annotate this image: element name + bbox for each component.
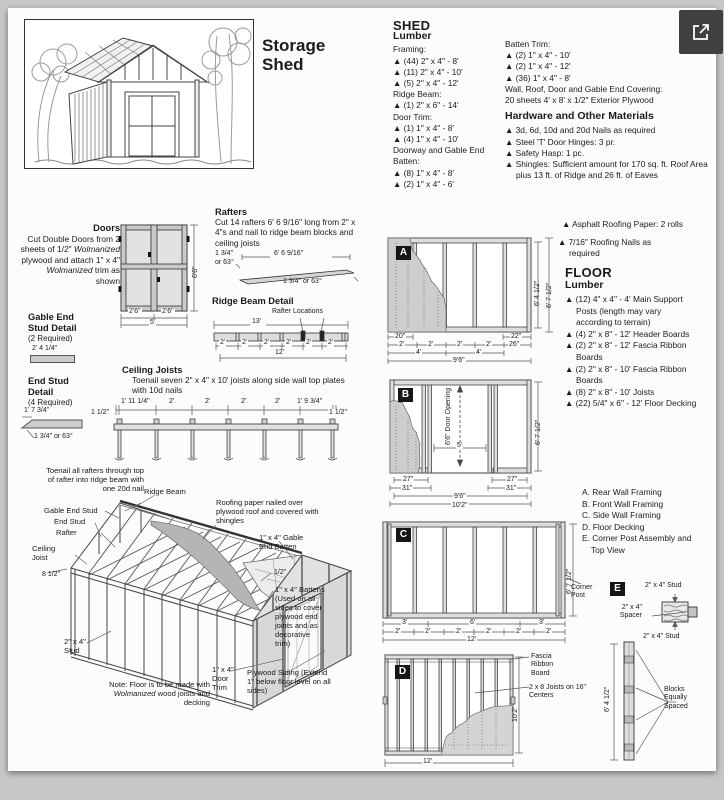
panel-a-dim: 2' (456, 341, 463, 349)
panel-b-dim: 31" (505, 485, 517, 493)
floor-note-text: wood joists and decking (156, 689, 210, 707)
list-item: ▲ Asphalt Roofing Paper: 2 rolls (562, 219, 714, 230)
spacer-label: 2" x 4" Spacer (606, 604, 642, 621)
batten-offset-dim: 1/2" (274, 569, 286, 577)
panel-a-dim: 4' (475, 349, 482, 357)
joist-seg-dim: 2' (240, 398, 247, 406)
joist-end-dim: 1 1/2" (90, 409, 110, 417)
side-wall-framing-diagram (381, 520, 586, 646)
panel-a-dim: 20" (394, 333, 406, 341)
floor-note-text: Note: Floor is to be made with (109, 680, 210, 689)
list-item: ▲ Safety Hasp: 1 pc. (505, 148, 721, 159)
ridge-beam-label: Ridge Beam (144, 488, 186, 497)
ridge-beam-detail-heading: Ridge Beam Detail (212, 296, 294, 307)
ridge-total-dim: 12' (274, 349, 285, 357)
joist-end-dim: 1 1/2" (328, 409, 348, 417)
doors-text-italic: Wolmanized (74, 244, 120, 254)
panel-c-dim: 2' (424, 628, 431, 636)
rear-wall-framing-diagram (386, 236, 556, 366)
list-item: ▲ (36) 1" x 4" - 8' (505, 73, 721, 84)
corner-post-top-view (656, 594, 706, 636)
end-stud-length-dim: 1' 7 3/4" (24, 407, 49, 415)
list-item: ▲ (4) 1" x 4" - 10' (393, 134, 501, 145)
panel-a-dim: 2' (398, 341, 405, 349)
joist-seg-dim: 2' (204, 398, 211, 406)
gable-batten-label: 1" x 4" Gable End Batten (259, 534, 305, 552)
gable-end-stud-dim: 2' 4 1/4" (32, 345, 57, 353)
panel-c-dim: 2' (485, 628, 492, 636)
panel-a-dim: 22" (510, 333, 522, 341)
doors-text-italic: Wolmanized (46, 265, 92, 275)
shed-subheading: Lumber (393, 31, 501, 42)
panel-c-dim: 2' (515, 628, 522, 636)
gable-end-stud-heading: Gable End Stud Detail (28, 312, 90, 334)
panel-c-badge: C (396, 528, 411, 542)
joist-seg-dim: 1' 9 3/4" (296, 398, 323, 406)
end-stud-label: End Stud (54, 518, 85, 527)
ridge-top-dim: 13' (251, 318, 262, 326)
legend-item: A. Rear Wall Framing (582, 487, 696, 499)
list-item: ▲ (2) 2" x 8" - 10' Fascia Ribbon Boards (565, 364, 697, 387)
list-item: ▲ (2) 1" x 4" - 12' (505, 61, 721, 72)
end-stud-heading: End Stud Detail (28, 376, 80, 398)
door-height-dim: 6'6" (192, 266, 200, 278)
list-item: ▲ (5) 2" x 4" - 12' (393, 78, 501, 89)
door-trim-label: 1" x 4" Door Trim (212, 666, 238, 693)
legend-item: D. Floor Decking (582, 522, 696, 534)
panel-b-dim: 10'2" (451, 502, 469, 510)
doors-heading: Doors (20, 223, 120, 234)
panel-a-dim: 9'6" (452, 357, 466, 365)
list-item: ▲ (2) 2" x 8" - 12' Fascia Ribbon Boards (565, 340, 697, 363)
list-item: ▲ Steel 'T' Door Hinges: 3 pr. (505, 137, 721, 148)
ridge-seg-dim: 2' (241, 339, 248, 347)
panel-b-badge: B (398, 388, 413, 402)
page-title-line1: Storage (262, 36, 325, 55)
framing-label: Framing: (393, 44, 501, 55)
panel-c-dim: 3' (538, 619, 545, 627)
doors-text: plywood and attach 1" x 4" (21, 255, 120, 265)
doors-text: trim as shown (93, 265, 120, 286)
panel-c-dim: 6' (469, 619, 476, 627)
hardware-heading: Hardware and Other Materials (505, 111, 721, 122)
ridge-seg-dim: 2' (263, 339, 270, 347)
plywood-siding-note: Plywood Siding (Extend 1" below floor le… (247, 669, 333, 696)
rafter-label: Rafter (56, 529, 77, 538)
panel-b-dim: 5' (456, 442, 463, 450)
joists-on-centers-label: 2 x 8 Joists on 16" Centers (529, 684, 587, 701)
roofing-note: Roofing paper nailed over plywood roof a… (216, 499, 332, 526)
rafter-angle-dim: 1 3/4" (215, 250, 233, 258)
panel-d-height-dim: 10'2" (512, 706, 520, 722)
shed-lumber-list: SHED Lumber Framing: ▲ (44) 2" x 4" - 8'… (393, 20, 501, 190)
joist-seg-dim: 2' (168, 398, 175, 406)
panel-c-dim: 12' (466, 636, 477, 644)
legend-item: C. Side Wall Framing (582, 510, 696, 522)
diagram-legend: A. Rear Wall Framing B. Front Wall Frami… (582, 487, 696, 557)
ridge-label: Ridge Beam: (393, 89, 501, 100)
panel-b-door-label: 6'6" Door Opening (445, 388, 453, 445)
covering-line1: Wall, Roof, Door and Gable End Covering: (505, 84, 721, 95)
panel-d-badge: D (395, 665, 410, 679)
gable-end-stud-board (30, 355, 75, 363)
eave-dim: 8 1/2" (42, 571, 60, 579)
list-item: ▲ (44) 2" x 4" - 8' (393, 56, 501, 67)
door-leaf-dim: 2'6" (128, 308, 142, 316)
panel-a-dim: 2' (427, 341, 434, 349)
rafters-text: Cut 14 rafters 6' 6 9/16" long from 2" x… (215, 217, 357, 248)
doorway-label: Doorway and Gable End Batten: (393, 145, 501, 167)
blocks-note: Blocks Equally Spaced (664, 686, 706, 711)
list-item: ▲ (11) 2" x 4" - 10' (393, 67, 501, 78)
stud-label: 2" x 4" Stud (64, 638, 92, 656)
gable-end-stud-qty: (2 Required) (28, 334, 72, 343)
floor-lumber-list: ▲ (12) 4" x 4" - 4' Main Support Posts (… (565, 294, 697, 410)
panel-b-dim: 27" (402, 476, 414, 484)
panel-c-dim: 2' (545, 628, 552, 636)
fascia-ribbon-label: Fascia Ribbon Board (531, 653, 571, 678)
floor-note: Note: Floor is to be made with Wolmanize… (96, 681, 210, 708)
shed-illustration-frame (24, 19, 254, 169)
list-item: ▲ 7/16" Roofing Nails as required (558, 237, 670, 259)
panel-a-height-dim: 6' 7 1/2" (546, 283, 554, 308)
door-trim-label: Door Trim: (393, 112, 501, 123)
page-title: Storage Shed (262, 36, 325, 74)
panel-d-dim: 12' (422, 758, 433, 766)
ceiling-joist-label: Ceiling Joist (32, 545, 62, 563)
panel-b-height-dim: 6' 7 1/2" (535, 420, 543, 445)
joist-seg-dim: 2' (274, 398, 281, 406)
open-in-new-icon (691, 22, 711, 42)
ridge-seg-dim: 2' (305, 339, 312, 347)
legend-item: E. Corner Post Assembly and Top View (582, 533, 696, 556)
hardware-column: Batten Trim: ▲ (2) 1" x 4" - 10' ▲ (2) 1… (505, 39, 721, 181)
panel-b-dim: 27" (506, 476, 518, 484)
list-item: ▲ (1) 1" x 4" - 8' (393, 123, 501, 134)
toenail-note: Toenail all rafters through top of rafte… (46, 467, 144, 494)
doors-note: Doors Cut Double Doors from 2 sheets of … (20, 223, 120, 287)
legend-item: B. Front Wall Framing (582, 499, 696, 511)
panel-c-dim: 3' (401, 619, 408, 627)
page-title-line2: Shed (262, 55, 325, 74)
ridge-seg-dim: 2' (285, 339, 292, 347)
ridge-seg-dim: 2' (327, 339, 334, 347)
ceiling-joists-text: Toenail seven 2" x 4" x 10' joists along… (132, 375, 360, 396)
joist-seg-dim: 1' 11 1/4" (120, 398, 151, 406)
list-item: ▲ (4) 2" x 8" - 12' Header Boards (565, 329, 697, 341)
list-item: ▲ (2) 1" x 4" - 6' (393, 179, 501, 190)
expand-button[interactable] (679, 10, 723, 54)
panel-e-badge: E (610, 582, 625, 596)
battens-note: 1" x 4" Battens (Used on all sides to co… (275, 586, 327, 649)
gable-end-stud-label: Gable End Stud (44, 507, 98, 516)
end-stud-angle-dim: 1 3/4" or 63° (34, 433, 73, 441)
ceiling-joists-diagram (104, 404, 349, 466)
panel-a-dim: 26" (508, 341, 520, 349)
rafter-angle-dim: or 63° (215, 259, 234, 267)
list-item: ▲ (8) 2" x 8" - 10' Joists (565, 387, 697, 399)
panel-a-badge: A (396, 246, 411, 260)
list-item: ▲ 3d, 6d, 10d and 20d Nails as required (505, 125, 721, 136)
corner-post-label: Corner Post (571, 584, 603, 601)
stud-top-label: 2" x 4" Stud (645, 582, 682, 590)
panel-a-dim: 4' (415, 349, 422, 357)
floor-subheading: Lumber (565, 279, 604, 291)
panel-c-dim: 2' (394, 628, 401, 636)
panel-c-dim: 2' (455, 628, 462, 636)
door-width-dim: 5' (149, 319, 156, 327)
rafter-angle-dim: 1 3/4" or 63° (283, 278, 322, 286)
ridge-seg-dim: 2' (219, 339, 226, 347)
screenshot-root: { "icons": {"expand": "open-in-new-icon"… (0, 0, 724, 800)
floor-note-italic: Wolmanized (114, 689, 156, 698)
panel-b-dim: 31" (401, 485, 413, 493)
panel-b-dim: 9'6" (453, 493, 467, 501)
list-item: ▲ (12) 4" x 4" - 4' Main Support Posts (… (565, 294, 697, 329)
shed-illustration (25, 20, 253, 168)
panel-a-height-dim: 6' 4 1/2" (534, 281, 542, 306)
list-item: ▲ (22) 5/4" x 6" - 12' Floor Decking (565, 398, 697, 410)
door-leaf-dim: 2'6" (161, 308, 175, 316)
list-item: ▲ (1) 2" x 6" - 14' (393, 100, 501, 111)
rafter-locations-callout: Rafter Locations (272, 308, 323, 316)
list-item: ▲ Shingles: Sufficient amount for 170 sq… (505, 159, 721, 181)
panel-a-dim: 2' (485, 341, 492, 349)
list-item: ▲ (8) 1" x 4" - 8' (393, 168, 501, 179)
post-height-dim: 6' 4 1/2" (604, 687, 612, 712)
covering-line2: 20 sheets 4' x 8' x 1/2" Exterior Plywoo… (505, 95, 721, 106)
document-page: Storage Shed SHED Lumber Framing: ▲ (44)… (8, 8, 716, 771)
